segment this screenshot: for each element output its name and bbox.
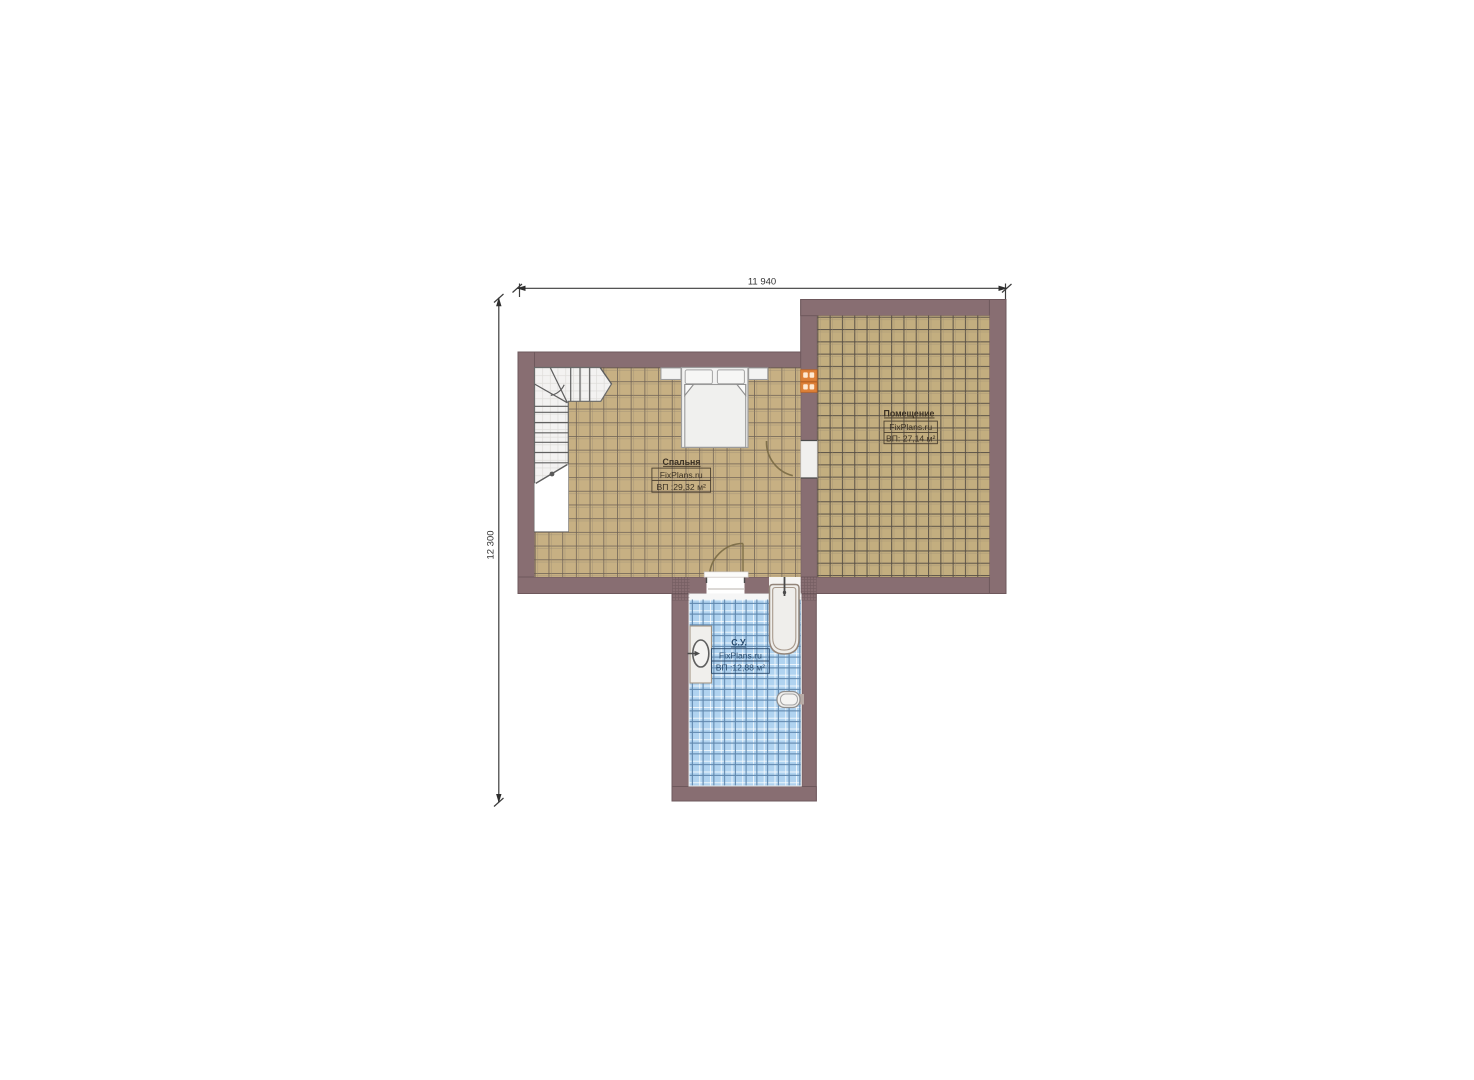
svg-text:Помещение: Помещение bbox=[884, 408, 935, 418]
svg-text:Спальня: Спальня bbox=[662, 457, 700, 467]
svg-text:ВП :29,32 м²: ВП :29,32 м² bbox=[657, 482, 706, 492]
svg-text:С.У.: С.У. bbox=[731, 638, 747, 648]
svg-text:ВП: 27,14 м²: ВП: 27,14 м² bbox=[886, 433, 935, 443]
svg-text:11 940: 11 940 bbox=[748, 277, 776, 288]
svg-text:FixPlans.ru: FixPlans.ru bbox=[889, 422, 932, 432]
svg-text:FixPlans.ru: FixPlans.ru bbox=[719, 650, 762, 660]
svg-text:ВП :12,88 м²: ВП :12,88 м² bbox=[716, 663, 765, 673]
svg-text:12 300: 12 300 bbox=[486, 530, 497, 559]
svg-text:FixPlans.ru: FixPlans.ru bbox=[660, 470, 703, 480]
